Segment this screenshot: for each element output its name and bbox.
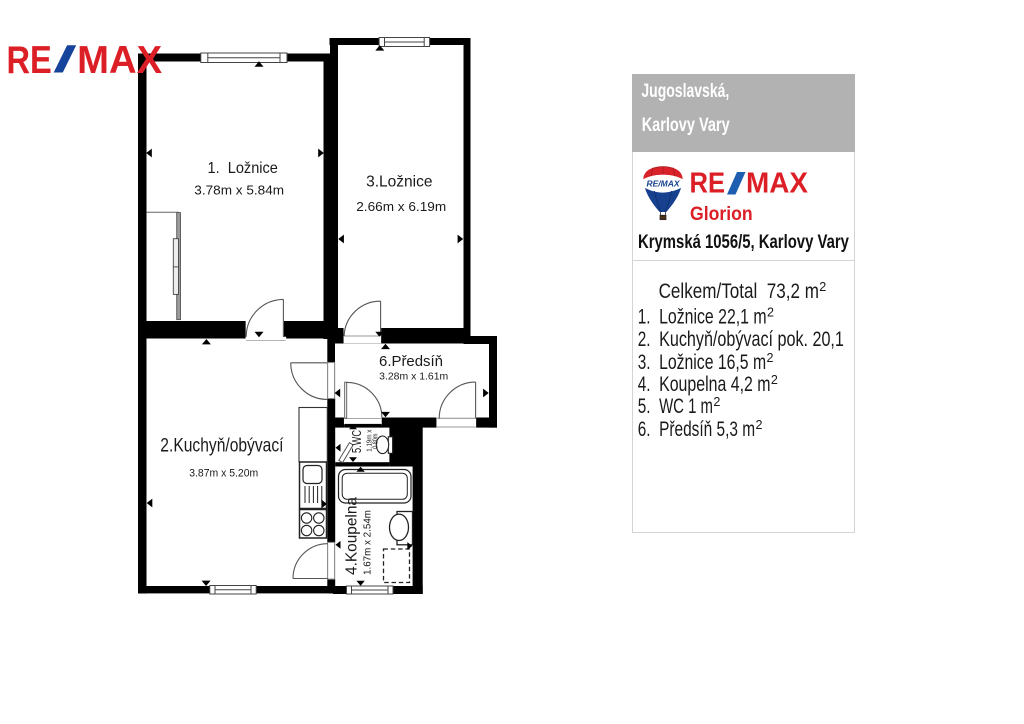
svg-text:2: 2 [766, 351, 773, 365]
svg-text:3.87m x 5.20m: 3.87m x 5.20m [189, 467, 258, 479]
svg-text:Kuchyň/obývací pok. 20,1: Kuchyň/obývací pok. 20,1 [659, 328, 844, 351]
svg-text:Ložnice 22,1 m: Ložnice 22,1 m [659, 306, 767, 329]
svg-text:2: 2 [713, 395, 720, 409]
svg-text:2: 2 [819, 280, 826, 294]
svg-text:6.Předsíň: 6.Předsíň [379, 353, 443, 370]
svg-text:2: 2 [767, 306, 774, 320]
svg-text:Koupelna 4,2 m: Koupelna 4,2 m [659, 373, 770, 396]
svg-text:2.66m x 6.19m: 2.66m x 6.19m [356, 199, 446, 214]
svg-text:Ložnice 16,5 m: Ložnice 16,5 m [659, 351, 766, 374]
svg-text:5.: 5. [637, 395, 650, 418]
svg-text:6.: 6. [637, 418, 650, 441]
svg-text:WC 1 m: WC 1 m [659, 395, 713, 418]
svg-text:1.67m x 2.54m: 1.67m x 2.54m [362, 510, 374, 575]
svg-text:4.: 4. [637, 373, 650, 396]
svg-text:2: 2 [755, 418, 762, 432]
svg-text:RE/MAX: RE/MAX [646, 179, 680, 189]
svg-text:MAX: MAX [77, 39, 162, 82]
svg-text:MAX: MAX [746, 168, 808, 200]
svg-text:Předsíň 5,3 m: Předsíň 5,3 m [659, 418, 755, 441]
svg-text:0.80m: 0.80m [373, 433, 380, 448]
svg-text:2: 2 [770, 373, 777, 387]
svg-text:Glorion: Glorion [690, 203, 753, 225]
svg-text:1. Ložnice: 1. Ložnice [208, 160, 278, 177]
svg-text:1.: 1. [637, 306, 650, 329]
svg-text:RE: RE [689, 168, 725, 200]
svg-text:4.Koupelna: 4.Koupelna [344, 497, 361, 575]
svg-text:2.: 2. [637, 328, 650, 351]
svg-text:RE: RE [7, 39, 52, 82]
svg-text:5.WC: 5.WC [349, 430, 364, 453]
svg-text:3.Ložnice: 3.Ložnice [366, 174, 432, 191]
svg-text:3.: 3. [637, 351, 650, 374]
svg-text:Celkem/Total 73,2 m: Celkem/Total 73,2 m [658, 280, 818, 303]
svg-text:3.78m x 5.84m: 3.78m x 5.84m [194, 183, 284, 198]
svg-text:3.28m x 1.61m: 3.28m x 1.61m [379, 371, 448, 383]
svg-text:2.Kuchyň/obývací: 2.Kuchyň/obývací [160, 435, 284, 457]
